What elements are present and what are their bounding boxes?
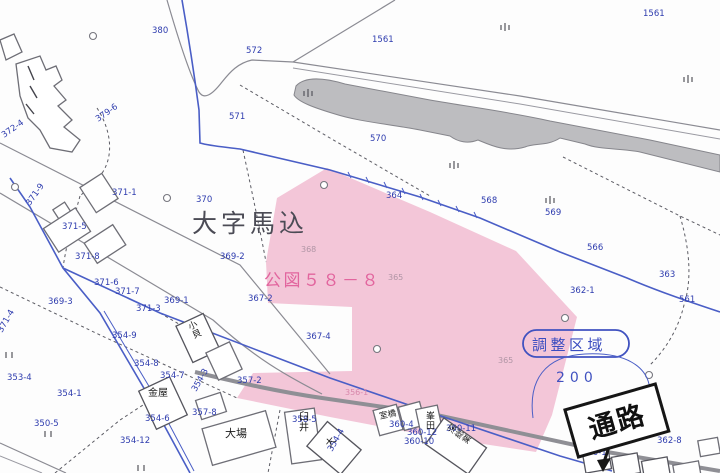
survey-marker-icon — [374, 346, 381, 353]
parcel-label: 354-12 — [120, 436, 150, 446]
survey-marker-icon — [90, 33, 97, 40]
building — [698, 437, 720, 456]
parcel-label: 354-9 — [112, 331, 137, 341]
parcel-label: 569 — [545, 208, 561, 218]
parcel-label: 354-6 — [145, 414, 170, 424]
parcel-label: 365 — [498, 356, 513, 365]
parcel-label: 379-6 — [94, 102, 120, 124]
parcel-label: 353-4 — [7, 373, 32, 383]
water-area — [293, 62, 720, 172]
rice-field-icon — [450, 161, 458, 169]
building — [0, 34, 22, 60]
field-tick-icon — [45, 431, 51, 437]
building-label: 金屋 — [148, 386, 168, 399]
field-tick-icon — [138, 465, 144, 471]
parcel-label: 362-8 — [657, 436, 682, 446]
survey-marker-icon — [164, 195, 171, 202]
rice-field-icon — [501, 23, 509, 31]
parcel-label: 364 — [386, 191, 402, 201]
cadastral-map-viewport: 3801561156157257157036456856956636356136… — [0, 0, 720, 473]
parcel-label: 1561 — [643, 9, 665, 19]
field-tick-icon — [6, 352, 12, 358]
parcel-label: 380 — [152, 26, 168, 36]
rice-field-icon — [546, 196, 554, 204]
parcel-label: 367-2 — [248, 294, 273, 304]
parcel-label: 356-1 — [345, 388, 368, 397]
parcel-label: 367-4 — [306, 332, 331, 342]
parcel-label: 365 — [388, 273, 403, 282]
parcel-label: 362-1 — [570, 286, 595, 296]
parcel-label: 369-2 — [220, 252, 245, 262]
parcel-label: 1561 — [372, 35, 394, 45]
parcel-label: 370 — [196, 195, 212, 205]
parcel-label: 371-7 — [115, 287, 140, 297]
parcel-label: 371-1 — [112, 188, 137, 198]
parcel-label: 568 — [481, 196, 497, 206]
parcel-label: 369-3 — [48, 297, 73, 307]
survey-marker-icon — [321, 182, 328, 189]
building-label: 峯田 — [426, 411, 435, 431]
koizu-label: 公図５８－８ — [264, 271, 381, 291]
building-label: 大場 — [225, 426, 247, 440]
parcel-label: 371-9 — [24, 182, 46, 208]
parcel-label: 371-3 — [136, 304, 161, 314]
region-title: 大字馬込 — [192, 209, 308, 238]
parcel-label: 369-1 — [164, 296, 189, 306]
parcel-label: 357-8 — [192, 408, 217, 418]
parcel-label: 371-8 — [75, 252, 100, 262]
parcel-label: 350-5 — [34, 419, 59, 429]
parcel-200-label: 200 — [556, 370, 598, 386]
survey-marker-icon — [12, 184, 19, 191]
parcel-label: 571 — [229, 112, 245, 122]
parcel-label: 371-4 — [0, 308, 17, 334]
building — [611, 453, 640, 473]
survey-marker-icon — [562, 315, 569, 322]
cadastral-map: 3801561156157257157036456856956636356136… — [0, 0, 720, 473]
stamp-label: 調整区域 — [532, 336, 606, 354]
parcel-label: 354-1 — [57, 389, 82, 399]
building-label: 臼井 — [299, 411, 309, 434]
parcel-label: 354-7 — [160, 371, 185, 381]
parcel-label: 371-5 — [62, 222, 87, 232]
building — [16, 56, 80, 152]
rice-field-icon — [684, 75, 692, 83]
parcel-label: 572 — [246, 46, 262, 56]
parcel-label: 360-10 — [404, 437, 434, 447]
parcel-label: 561 — [679, 295, 695, 305]
parcel-label: 354-3 — [190, 367, 211, 393]
parcel-label: 363 — [659, 270, 675, 280]
parcel-label: 354-8 — [134, 359, 159, 369]
parcel-label: 368 — [301, 245, 316, 254]
parcel-label: 566 — [587, 243, 603, 253]
parcel-label: 357-2 — [237, 376, 262, 386]
parcel-label: 570 — [370, 134, 386, 144]
parcel-label: 372-4 — [0, 118, 26, 140]
